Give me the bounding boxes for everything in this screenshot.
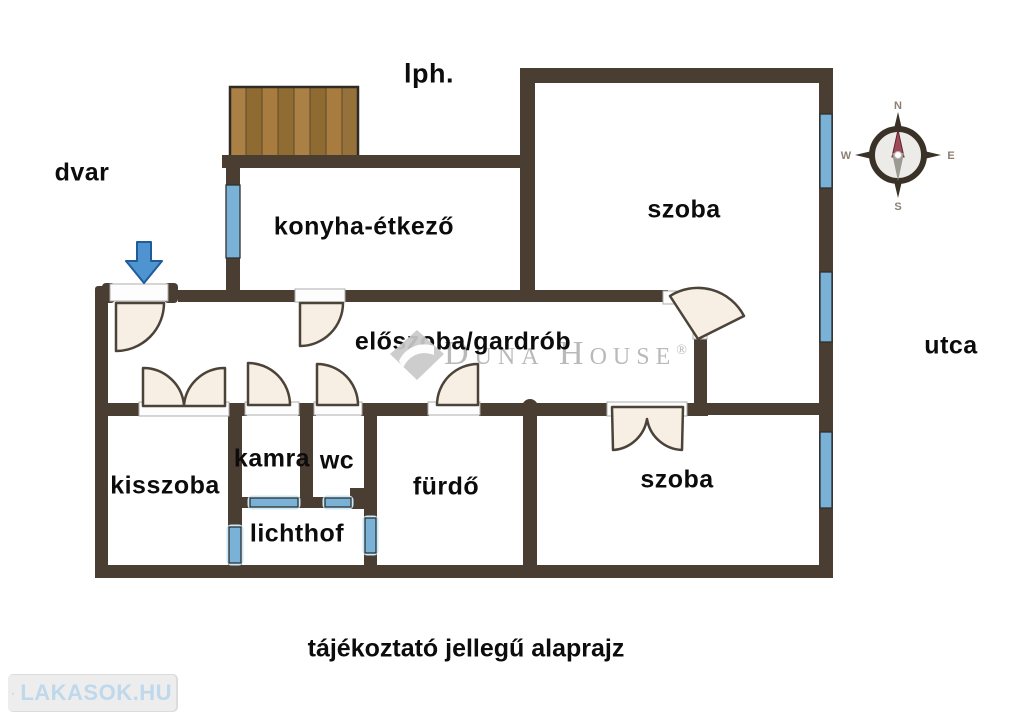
dunahouse-diamond-icon — [388, 328, 446, 382]
room-label-szoba-top: szoba — [647, 196, 720, 225]
szoba-top-fan-door — [670, 288, 744, 339]
floor-plan: N E S W Duna House® lph. dvar konyha-étk… — [0, 0, 1024, 714]
kisszoba-double-door — [143, 368, 225, 406]
kamra-door — [248, 363, 290, 405]
entrance-arrow-icon — [126, 242, 162, 283]
wood-deck — [230, 87, 358, 157]
compass-w-label: W — [841, 150, 852, 162]
entrance-door — [116, 303, 164, 351]
room-label-kisszoba: kisszoba — [110, 472, 220, 501]
wc-door — [317, 364, 358, 405]
compass-icon: N E S W — [841, 100, 955, 213]
room-label-szoba-bottom: szoba — [640, 466, 713, 495]
room-label-dvar: dvar — [55, 159, 110, 188]
room-label-kamra: kamra — [234, 445, 310, 474]
room-label-wc: wc — [320, 447, 354, 476]
compass-s-label: S — [894, 201, 901, 213]
plan-caption: tájékoztató jellegű alaprajz — [308, 635, 625, 664]
house-icon — [12, 678, 14, 709]
lakasok-logo-text: LAKASOK.HU — [20, 680, 172, 706]
room-label-konyha: konyha-étkező — [274, 213, 454, 242]
registered-mark: ® — [676, 343, 687, 358]
lakasok-logo: LAKASOK.HU — [8, 675, 176, 711]
kitchen-door — [300, 303, 343, 346]
room-label-lichthof: lichthof — [250, 520, 344, 549]
room-label-lph: lph. — [404, 59, 454, 90]
compass-n-label: N — [894, 100, 902, 112]
room-label-furdo: fürdő — [413, 473, 479, 502]
area-label-utca: utca — [924, 332, 977, 361]
compass-e-label: E — [947, 150, 954, 162]
szoba-bottom-double-door — [612, 407, 683, 450]
